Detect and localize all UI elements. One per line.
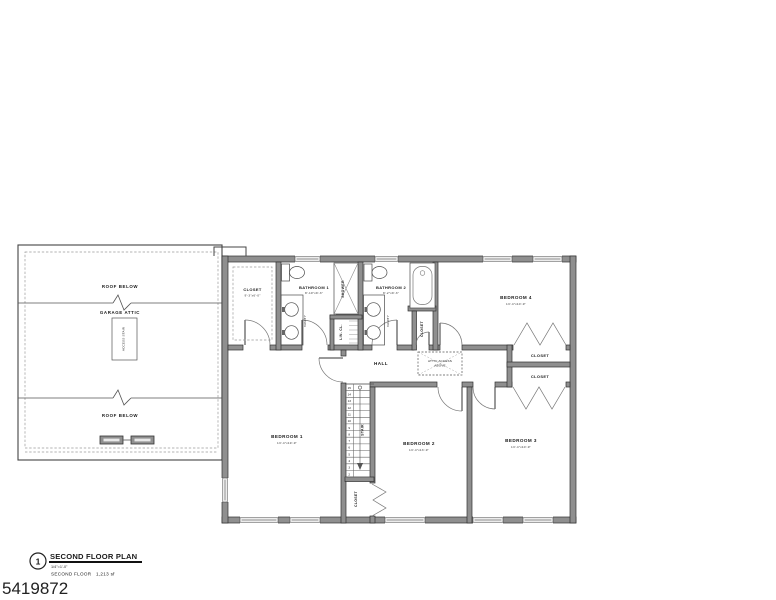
- shower-icon: SHOWER: [334, 263, 358, 314]
- bedroom-2-label: BEDROOM 2: [403, 441, 435, 446]
- stair-number: 15: [348, 386, 352, 390]
- bedroom-1: BEDROOM 1 13'-4"x19'-9": [271, 434, 303, 445]
- bathroom-1-label: BATHROOM 1: [299, 285, 330, 290]
- bath2-closet-label: CLOSET: [420, 320, 424, 337]
- linen-closet-label: LIN. CL.: [339, 324, 343, 340]
- bedroom-3-dims: 13'-4"x10'-9": [511, 445, 531, 449]
- stair-number: 12: [348, 406, 352, 410]
- stair-number: 8: [348, 432, 350, 436]
- attic-access-label-2: ABOVE: [434, 364, 445, 368]
- window: [295, 256, 320, 263]
- left-wing: ROOF BELOW GARAGE ATTIC ACCESS STAIR ROO…: [18, 245, 222, 460]
- door-arc: [438, 387, 462, 411]
- vanity-icon: VANITY: [364, 295, 391, 345]
- drawing-number: 5419872: [2, 579, 68, 598]
- roof-below-bottom-label: ROOF BELOW: [102, 413, 138, 418]
- bedroom-1-dims: 13'-4"x19'-9": [277, 441, 297, 445]
- bedroom-4-label: BEDROOM 4: [500, 295, 532, 300]
- bathroom-2-dims: 8'-2"x9'-3": [383, 291, 399, 295]
- stair-number: 6: [348, 446, 350, 450]
- stair-number: 14: [348, 393, 352, 397]
- window: [483, 256, 512, 263]
- vanity-icon: VANITY: [281, 295, 307, 345]
- main-plan: CLOSET 9'-3"x6'-0" VANITY SHOWER: [214, 247, 576, 524]
- plan-scale: 1/4"=1'-0": [51, 565, 68, 569]
- stair-number: 11: [348, 413, 351, 417]
- window: [523, 517, 553, 524]
- floor-note: SECOND FLOOR: [51, 572, 92, 577]
- bedroom-4: BEDROOM 4 13'-4"x10'-9": [500, 295, 532, 306]
- bathroom-2-label: BATHROOM 2: [376, 285, 407, 290]
- stair-number: 10: [348, 419, 352, 423]
- roof-below-top-label: ROOF BELOW: [102, 284, 138, 289]
- toilet-icon: [364, 264, 387, 281]
- window: [290, 517, 320, 524]
- bifold-door: [514, 323, 566, 345]
- vanity-label: VANITY: [386, 315, 390, 327]
- stair-number: 3: [348, 466, 350, 470]
- title-underline: [49, 561, 142, 563]
- hall: HALL ATTIC ACCESS ABOVE: [374, 352, 462, 375]
- walkin-closet-dims: 9'-3"x6'-0": [244, 294, 260, 298]
- bedroom-3-label: BEDROOM 3: [505, 438, 537, 443]
- bathroom-1: VANITY SHOWER BATHROOM 1 8'-10"x9'-3": [281, 263, 358, 345]
- window: [375, 256, 398, 263]
- stair-number: 13: [348, 399, 352, 403]
- walkin-closet-label: CLOSET: [243, 287, 262, 292]
- bathroom-1-dims: 8'-10"x9'-3": [305, 291, 323, 295]
- shower-label: SHOWER: [341, 280, 345, 298]
- title-bubble-number: 1: [36, 556, 41, 566]
- stair-closet-label: CLOSET: [354, 490, 358, 507]
- floor-area: 1,213 sf: [96, 572, 115, 577]
- shelf-lines: [349, 321, 358, 343]
- stair-number: 4: [348, 459, 350, 463]
- window: [385, 517, 425, 524]
- bathtub-icon: [410, 263, 435, 308]
- closet-r1-label: CLOSET: [531, 353, 550, 358]
- door-arc: [473, 387, 495, 409]
- door-arc: [245, 320, 270, 345]
- closet-r2-label: CLOSET: [531, 374, 550, 379]
- attic-access-label-1: ATTIC ACCESS: [428, 359, 452, 363]
- toilet-icon: [282, 264, 305, 281]
- bifold-door: [372, 484, 386, 516]
- stair-number: 9: [348, 426, 350, 430]
- window-left: [222, 478, 229, 502]
- walkin-closet: CLOSET 9'-3"x6'-0": [233, 267, 272, 340]
- bifold-door: [513, 387, 565, 409]
- bedroom-4-dims: 13'-4"x10'-9": [506, 302, 526, 306]
- title-block: 1 SECOND FLOOR PLAN 1/4"=1'-0" SECOND FL…: [30, 552, 142, 577]
- stair-number: 5: [348, 452, 350, 456]
- hall-label: HALL: [374, 361, 388, 366]
- linen-closet: LIN. CL.: [339, 321, 358, 343]
- garage-attic-label: GARAGE ATTIC: [100, 310, 140, 315]
- window: [473, 517, 503, 524]
- stair-label: STAIR: [361, 424, 365, 436]
- stair-number: 7: [348, 439, 350, 443]
- stair-number: 2: [348, 472, 350, 476]
- stairs: 15 14 13 12 11 10 9 8 7 6 5 4 3 2 STAIR: [345, 384, 374, 507]
- vanity-label: VANITY: [303, 315, 307, 327]
- access-stair-label: ACCESS STAIR: [122, 326, 126, 351]
- attic-access-box: ATTIC ACCESS ABOVE: [418, 352, 462, 375]
- stair-numbers: 15 14 13 12 11 10 9 8 7 6 5 4 3 2: [348, 386, 352, 476]
- bedroom-3: BEDROOM 3 13'-4"x10'-9": [505, 438, 537, 449]
- closet-shelf-outline: [233, 267, 272, 340]
- bedroom-2-dims: 13'-4"x13'-9": [409, 448, 429, 452]
- window: [533, 256, 562, 263]
- bedroom-2: BEDROOM 2 13'-4"x13'-9": [403, 441, 435, 452]
- floor-plan-sheet: ROOF BELOW GARAGE ATTIC ACCESS STAIR ROO…: [0, 0, 776, 600]
- floor-plan-svg: ROOF BELOW GARAGE ATTIC ACCESS STAIR ROO…: [0, 0, 776, 600]
- plan-title: SECOND FLOOR PLAN: [50, 552, 137, 561]
- window: [240, 517, 278, 524]
- bedroom-1-label: BEDROOM 1: [271, 434, 303, 439]
- door-arc: [319, 358, 343, 382]
- door-arc: [440, 323, 462, 345]
